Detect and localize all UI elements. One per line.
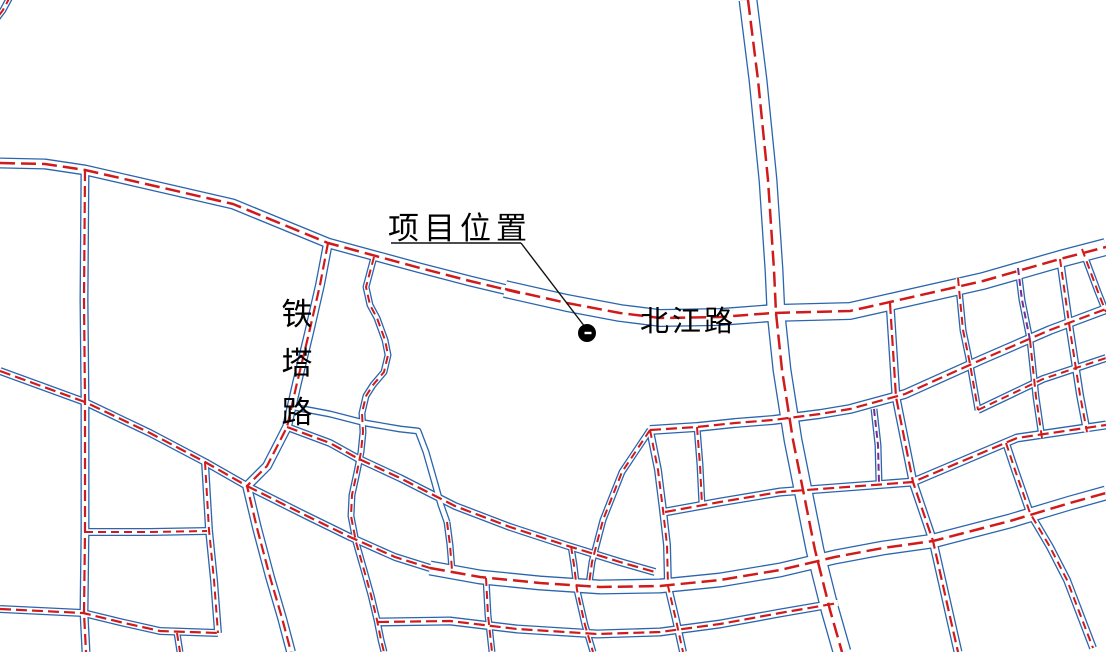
leader-line	[521, 243, 585, 327]
road-map-canvas	[0, 0, 1106, 652]
tieta-char-1: 铁	[279, 290, 315, 339]
location-map: 项目位置 北江路 铁 塔 路	[0, 0, 1106, 652]
road-surface-mid-vert-1	[650, 430, 683, 652]
road-surface-east-short-rise	[978, 358, 1106, 410]
road-surface-mid-diagonal	[287, 427, 655, 572]
project-location-label: 项目位置	[388, 203, 532, 248]
marker-tick	[585, 332, 592, 334]
road-centerline-south-main	[430, 493, 1106, 587]
tieta-char-3: 路	[279, 388, 315, 437]
tieta-road-label: 铁 塔 路	[279, 290, 315, 437]
road-surface-ne-fall-2	[958, 278, 978, 410]
tieta-char-2: 塔	[279, 339, 315, 388]
beijiang-road-label: 北江路	[640, 298, 736, 340]
road-surface-corner-stub	[0, 0, 10, 18]
road-casing-west-diagonal	[0, 371, 247, 486]
road-surface-southwest-road	[0, 609, 218, 633]
